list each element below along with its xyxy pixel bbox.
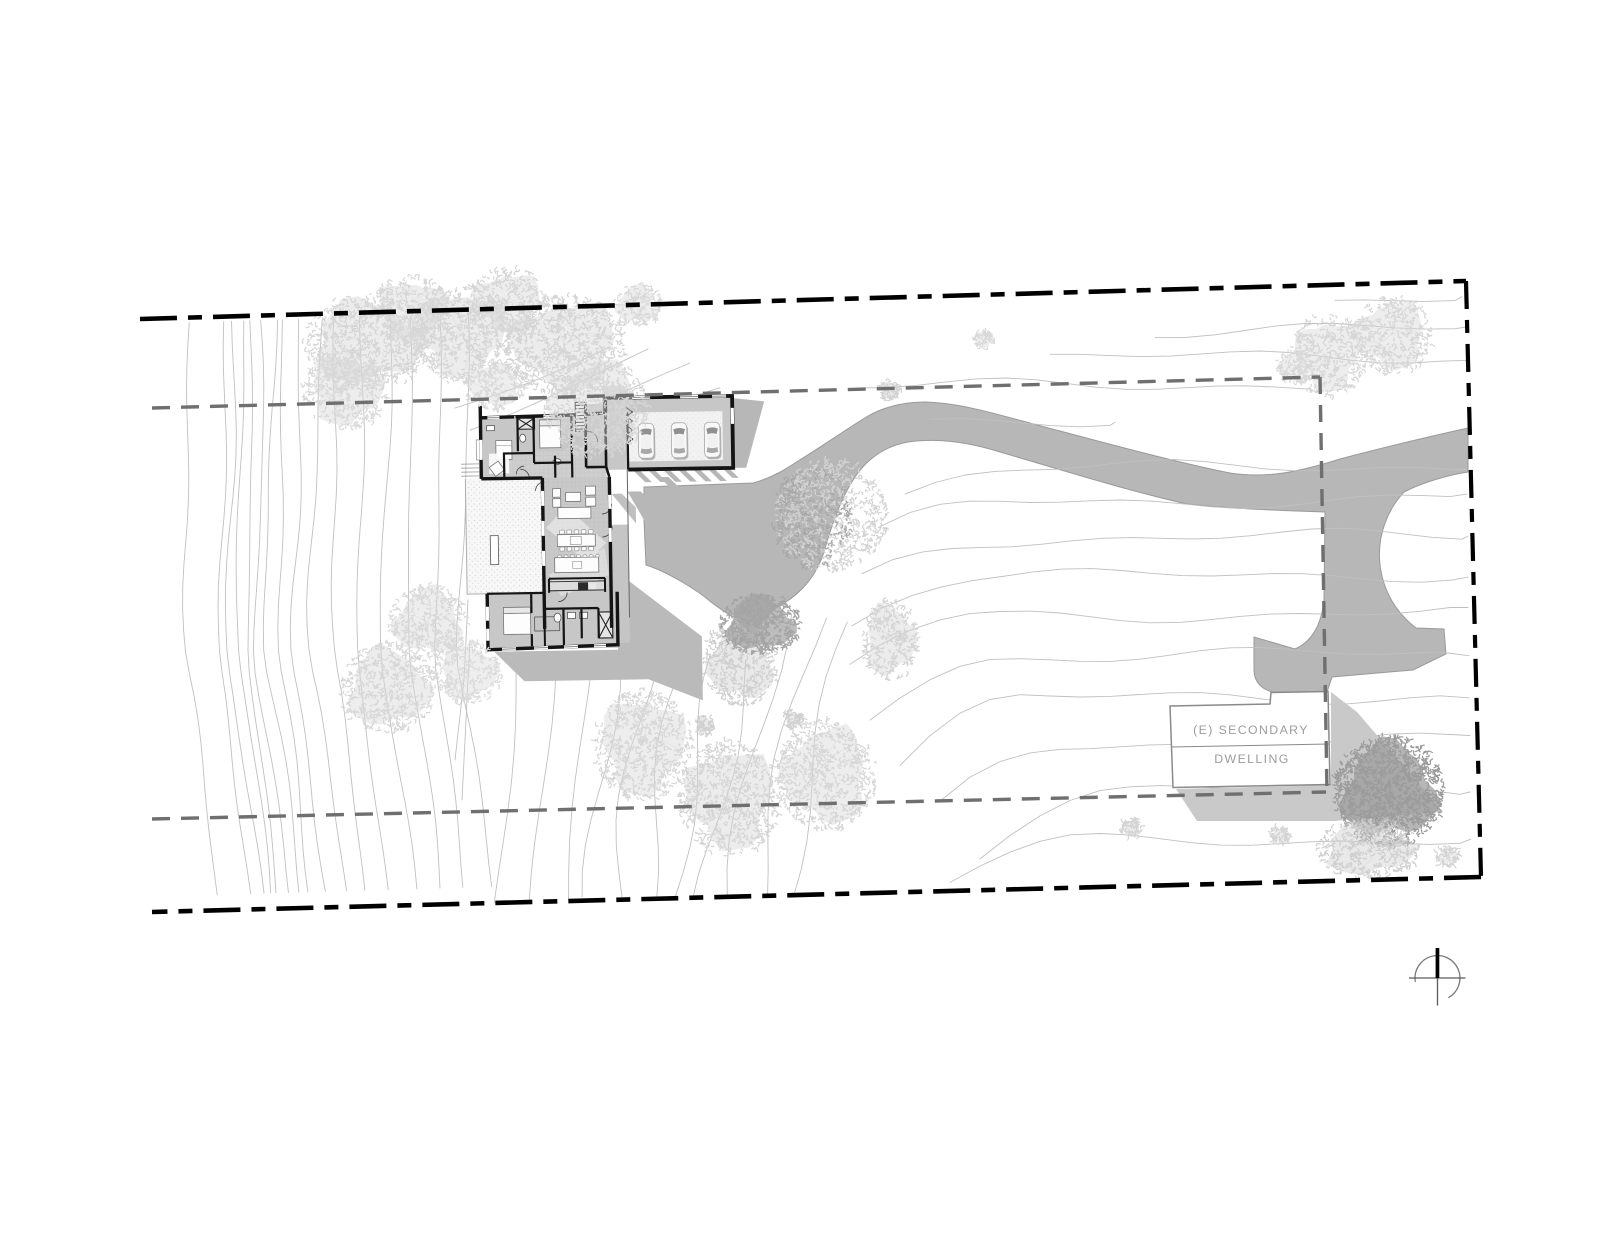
svg-text:DWELLING: DWELLING (1214, 752, 1289, 766)
svg-text:(E) SECONDARY: (E) SECONDARY (1193, 723, 1309, 737)
